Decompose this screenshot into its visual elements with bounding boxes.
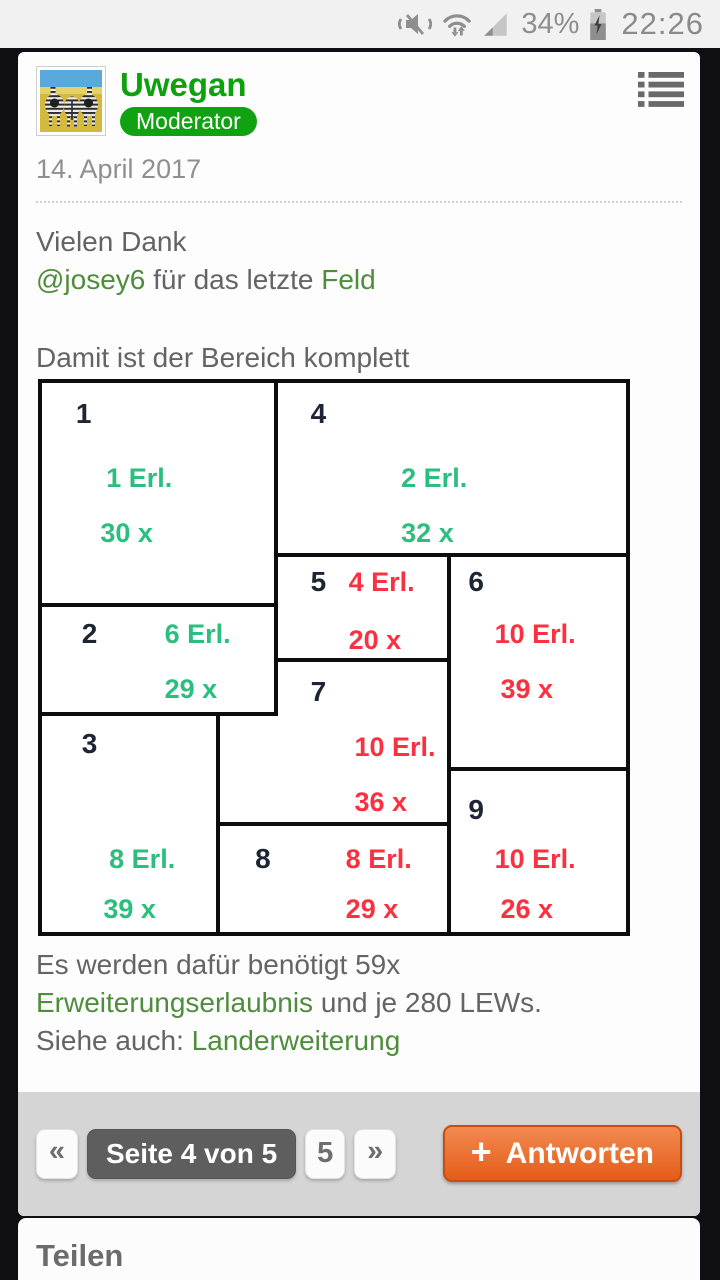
field-2-number: 2	[82, 619, 98, 649]
reply-button[interactable]: + Antworten	[443, 1125, 682, 1182]
field-4-number: 4	[311, 399, 327, 429]
field-6-erl: 10 Erl.	[495, 619, 576, 649]
next-page-button[interactable]: »	[354, 1129, 396, 1179]
paragraph-requirements: Es werden dafür benötigt 59x Erweiterung…	[36, 946, 682, 1060]
author-name[interactable]: Uwegan	[120, 68, 257, 102]
field-3-count: 39 x	[103, 894, 156, 924]
field-5-erl: 4 Erl.	[349, 567, 415, 597]
text-mid: für das letzte	[145, 264, 321, 295]
field-3-number: 3	[82, 729, 98, 759]
plus-icon: +	[471, 1137, 492, 1171]
status-bar: 34% 22:26	[0, 0, 720, 48]
first-page-button[interactable]: «	[36, 1129, 78, 1179]
field-7-number: 7	[311, 677, 327, 707]
wifi-icon	[442, 11, 472, 37]
share-card: Teilen	[18, 1218, 700, 1280]
field-6-number: 6	[468, 567, 484, 597]
cell-signal-icon	[482, 12, 509, 37]
field-1-number: 1	[76, 399, 92, 429]
post-body: Vielen Dank @josey6 für das letzte Feld …	[18, 203, 700, 1092]
mention-link[interactable]: @josey6	[36, 264, 145, 295]
text-thanks: Vielen Dank	[36, 226, 186, 257]
field-8-count: 29 x	[346, 894, 399, 924]
field-1-count: 30 x	[100, 518, 153, 548]
zebra-avatar-image	[40, 70, 102, 132]
text-req-post: und je 280 LEWs.	[313, 987, 542, 1018]
land-map-image[interactable]: 1 1 Erl. 30 x 4 2 Erl. 32 x 5 4 Erl. 20 …	[38, 379, 630, 936]
field-2-count: 29 x	[165, 674, 218, 704]
moderator-badge: Moderator	[120, 107, 257, 136]
field-3-erl: 8 Erl.	[109, 844, 175, 874]
list-menu-icon[interactable]	[638, 72, 684, 107]
text-req-pre: Es werden dafür benötigt 59x	[36, 949, 400, 980]
field-5-number: 5	[311, 567, 327, 597]
post-date: 14. April 2017	[36, 142, 682, 203]
field-4-count: 32 x	[401, 518, 454, 548]
field-8-erl: 8 Erl.	[346, 844, 412, 874]
erweiterungserlaubnis-link[interactable]: Erweiterungserlaubnis	[36, 987, 313, 1018]
vibrate-muted-icon	[398, 10, 432, 38]
field-9-erl: 10 Erl.	[495, 844, 576, 874]
field-9-number: 9	[468, 795, 484, 825]
author-group: Uwegan Moderator	[120, 66, 257, 136]
pagination: « Seite 4 von 5 5 »	[36, 1129, 396, 1179]
battery-charging-icon	[589, 9, 607, 40]
field-8-number: 8	[255, 844, 271, 874]
map-wall	[447, 767, 626, 771]
page-background: Uwegan Moderator 14. April 2017 Vielen D…	[0, 48, 720, 1280]
field-1-erl: 1 Erl.	[106, 463, 172, 493]
page-5-button[interactable]: 5	[305, 1129, 345, 1179]
field-2-erl: 6 Erl.	[165, 619, 231, 649]
share-title: Teilen	[36, 1238, 682, 1274]
map-wall	[274, 383, 278, 712]
field-4-erl: 2 Erl.	[401, 463, 467, 493]
battery-percent: 34%	[521, 8, 579, 41]
field-9-count: 26 x	[500, 894, 553, 924]
feld-link[interactable]: Feld	[321, 264, 375, 295]
field-7-erl: 10 Erl.	[354, 732, 435, 762]
map-wall	[274, 553, 626, 557]
paragraph-thanks: Vielen Dank @josey6 für das letzte Feld	[36, 223, 682, 299]
avatar[interactable]	[36, 66, 106, 136]
post-card: Uwegan Moderator 14. April 2017 Vielen D…	[18, 52, 700, 1216]
map-wall	[447, 553, 451, 932]
paragraph-complete: Damit ist der Bereich komplett	[36, 339, 682, 377]
landerweiterung-link[interactable]: Landerweiterung	[192, 1025, 401, 1056]
post-footer: « Seite 4 von 5 5 » + Antworten	[18, 1092, 700, 1216]
field-5-count: 20 x	[349, 625, 402, 655]
text-seealso: Siehe auch:	[36, 1025, 192, 1056]
map-wall	[274, 658, 451, 662]
field-7-count: 36 x	[354, 787, 407, 817]
current-page-indicator: Seite 4 von 5	[87, 1129, 296, 1179]
map-wall	[42, 712, 278, 716]
post-header: Uwegan Moderator	[18, 52, 700, 142]
map-wall	[42, 603, 278, 607]
clock: 22:26	[621, 6, 704, 42]
field-6-count: 39 x	[500, 674, 553, 704]
map-wall	[216, 822, 451, 826]
reply-button-label: Antworten	[506, 1137, 654, 1171]
